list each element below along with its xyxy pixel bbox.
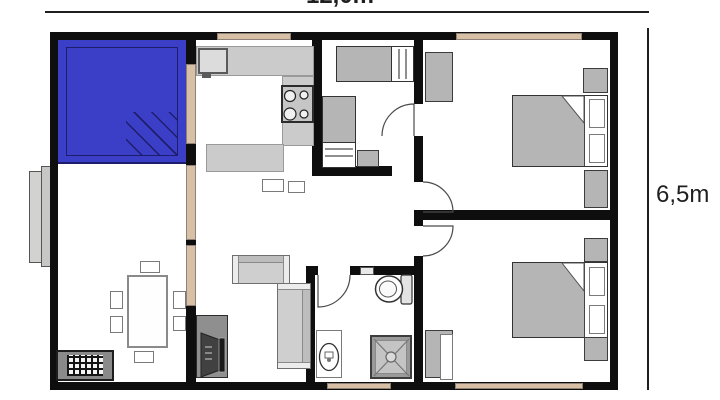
mattress	[323, 97, 355, 143]
stove	[281, 85, 314, 123]
dimension-label-height: 6,5m	[656, 183, 709, 207]
wall	[414, 256, 423, 382]
sofa-armrest	[278, 362, 310, 368]
chair	[140, 261, 160, 273]
chair	[134, 351, 154, 363]
wall	[414, 210, 423, 226]
pillow-stripe	[398, 49, 400, 79]
pillow	[589, 305, 605, 334]
kitchen-counter-peninsula	[206, 144, 284, 172]
window-bedroom-top	[456, 33, 582, 40]
wall-bedroom-divider	[423, 210, 618, 220]
nightstand	[584, 238, 608, 262]
dining-table	[127, 275, 168, 348]
cabinet	[440, 334, 453, 380]
kitchen-sink	[198, 48, 228, 74]
wall	[186, 144, 196, 165]
wardrobe	[425, 52, 453, 102]
single-bed-horizontal	[336, 46, 414, 82]
chair	[173, 291, 186, 309]
pillow-stripe	[325, 155, 353, 157]
wall-fixture	[360, 267, 374, 275]
sofa-armrest	[278, 284, 310, 290]
shower	[370, 335, 412, 379]
window-bedroom-bottom	[455, 383, 583, 389]
tv-stand	[196, 315, 228, 378]
kitchen-sink-handle	[202, 74, 211, 78]
single-bed-vertical	[322, 96, 356, 168]
sofa-back	[302, 284, 310, 368]
wall	[186, 40, 196, 64]
sink-vanity	[316, 330, 342, 378]
pillow-stripe	[405, 49, 407, 79]
chair	[110, 291, 123, 309]
nightstand	[357, 150, 379, 167]
floor-grate	[56, 350, 114, 381]
side-table	[262, 179, 284, 192]
sofa-armrest	[233, 256, 239, 283]
window-partition-mid-b	[186, 245, 196, 306]
window-partition-mid-a	[186, 165, 196, 240]
dimension-line-height	[647, 28, 649, 390]
sofa-vertical	[277, 283, 311, 369]
floor-plan-canvas: 12,0m 6,5m	[0, 0, 720, 400]
dimension-line-width	[45, 11, 649, 13]
chair	[173, 316, 186, 331]
pillow	[589, 134, 605, 163]
mattress	[337, 47, 392, 81]
nightstand	[583, 68, 608, 93]
mattress	[513, 263, 585, 337]
floor-grate-grid	[67, 355, 103, 376]
sofa-armrest	[283, 256, 289, 283]
pillow	[589, 267, 605, 296]
nightstand	[584, 337, 608, 361]
dimension-label-width: 12,0m	[300, 0, 380, 8]
wall	[414, 40, 423, 104]
pillow	[589, 99, 605, 128]
shower-tray	[375, 340, 407, 374]
wall	[186, 306, 196, 382]
window-bathroom-bottom	[327, 383, 391, 389]
window-kitchen-top	[217, 33, 291, 40]
double-bed	[512, 95, 608, 167]
mattress	[513, 96, 585, 166]
chair	[110, 316, 123, 333]
side-table	[288, 181, 305, 193]
sofa-back	[233, 256, 289, 263]
nightstand	[584, 170, 608, 208]
pillow-stripe	[325, 148, 353, 150]
sofa-horizontal	[232, 255, 290, 284]
double-bed	[512, 262, 608, 338]
wall	[414, 136, 423, 182]
window-partition-upper	[186, 64, 196, 144]
